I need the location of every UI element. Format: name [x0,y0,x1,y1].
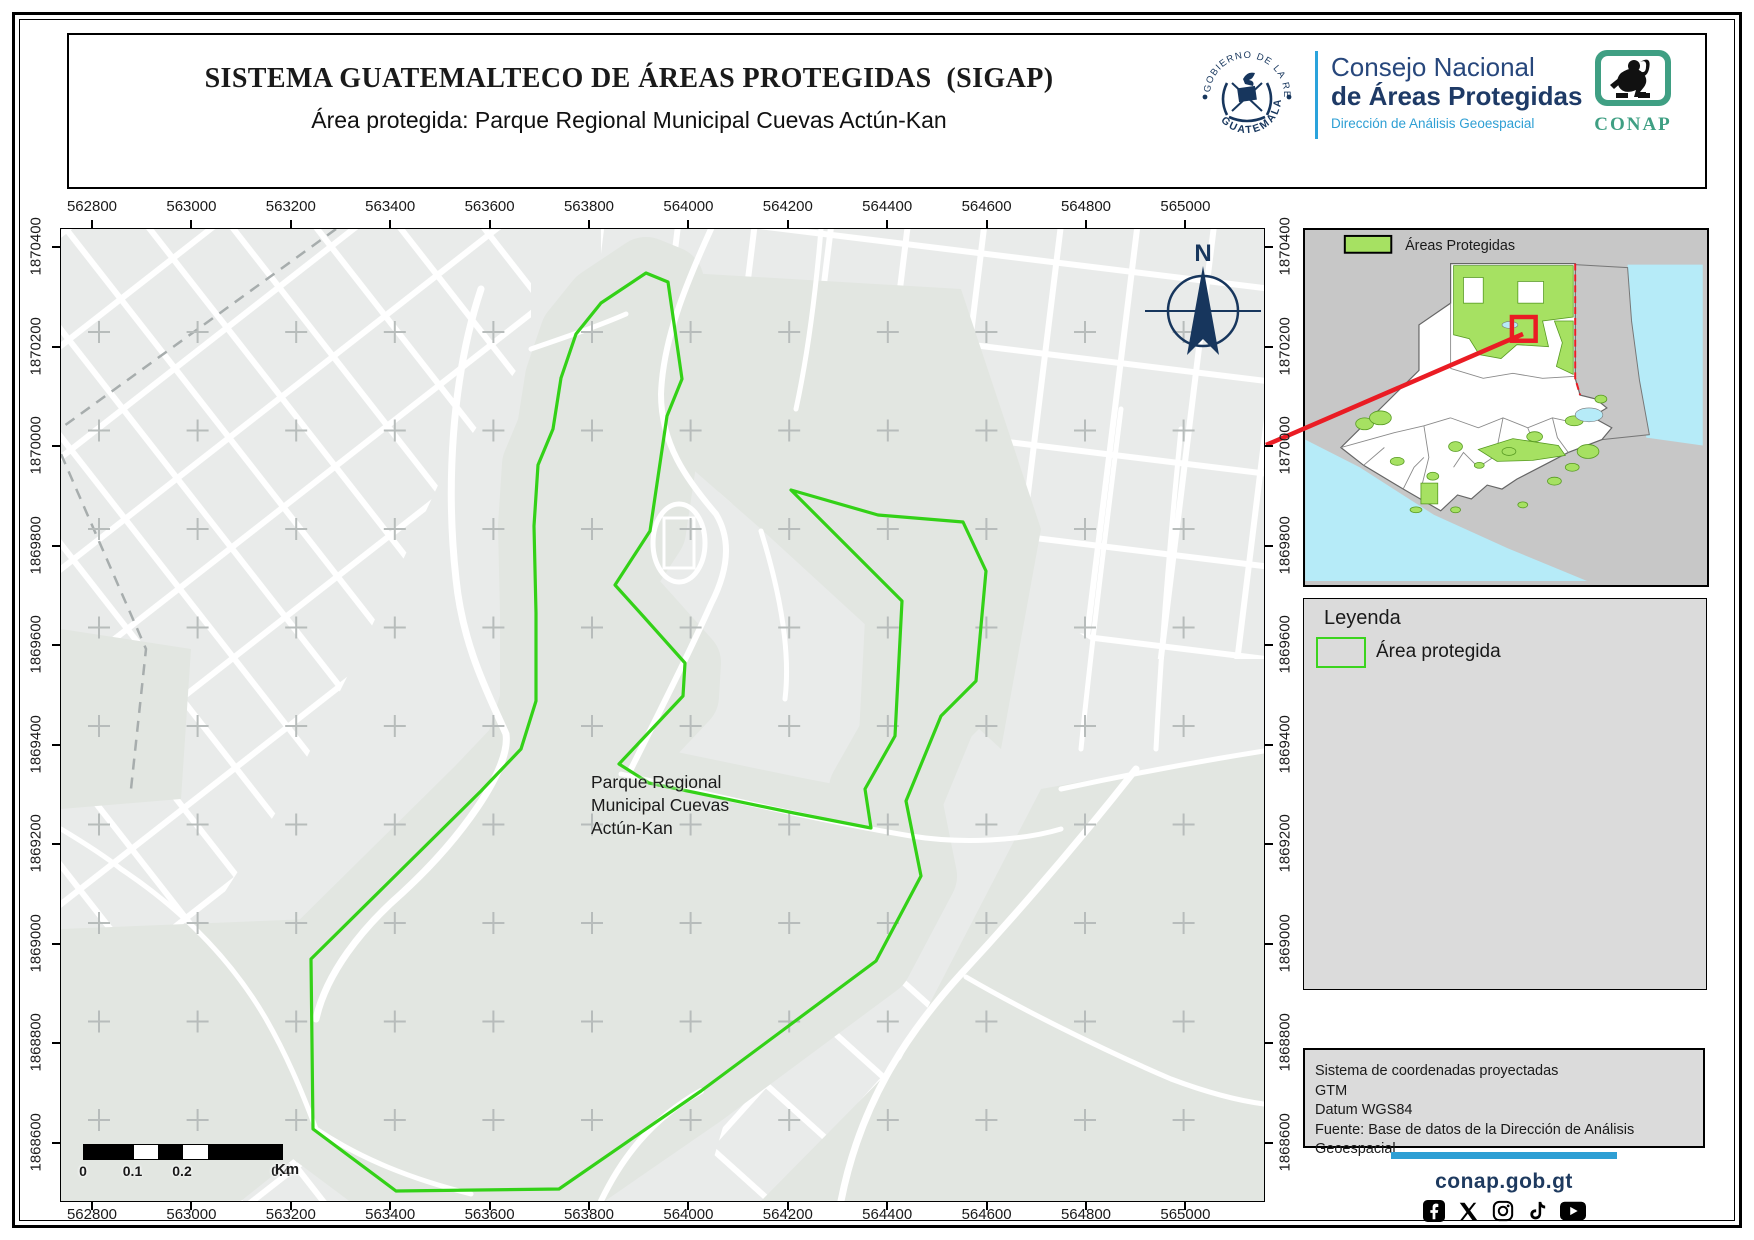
axis-tick-label: 1870000 [1277,417,1294,475]
axis-tick-mark [52,843,60,845]
locator-inset-map: Áreas Protegidas [1303,228,1709,587]
org-line1: Consejo Nacional [1331,53,1582,82]
axis-tick-mark [489,220,491,228]
axis-tick-label: 1870000 [28,417,45,475]
axis-tick-label: 1870400 [1277,218,1294,276]
scale-bar: 0 0.1 0.2 0.4 Km [83,1144,283,1183]
org-line3: Dirección de Análisis Geoespacial [1331,116,1582,131]
axis-tick-label: 564000 [648,198,728,215]
street-basemap: N [61,229,1264,1201]
axis-tick-label: 1869000 [1277,914,1294,972]
social-icons-row [1303,1199,1705,1223]
axis-tick-mark [91,220,93,228]
axis-tick-mark [787,1202,789,1210]
axis-tick-label: 564800 [1046,198,1126,215]
inset-legend-swatch [1345,236,1391,253]
info-line: Datum WGS84 [1315,1101,1703,1121]
axis-tick-mark [52,943,60,945]
axis-tick-mark [1085,1202,1087,1210]
org-name-block: Consejo Nacional de Áreas Protegidas Dir… [1331,53,1582,131]
axis-tick-label: 564600 [947,198,1027,215]
info-line: Sistema de coordenadas proyectadas [1315,1062,1703,1082]
axis-tick-label: 1869200 [28,815,45,873]
axis-tick-label: 1868600 [28,1113,45,1171]
logo-divider [1315,51,1318,139]
info-line: GTM [1315,1082,1703,1102]
coordinate-system-info: Sistema de coordenadas proyectadas GTM D… [1303,1048,1705,1148]
axis-tick-label: 563600 [450,198,530,215]
axis-tick-mark [52,1042,60,1044]
axis-tick-mark [52,246,60,248]
axis-tick-mark [52,1142,60,1144]
axis-tick-label: 565000 [1145,198,1225,215]
axis-tick-label: 563000 [151,198,231,215]
axis-tick-mark [91,1202,93,1210]
page-subtitle: Área protegida: Parque Regional Municipa… [89,107,1169,134]
axis-tick-mark [588,220,590,228]
axis-tick-mark [389,220,391,228]
axis-tick-label: 1869400 [1277,715,1294,773]
axis-tick-mark [687,1202,689,1210]
axis-tick-mark [52,545,60,547]
axis-tick-label: 1868800 [28,1014,45,1072]
conap-monkey-icon [1594,49,1672,107]
axis-tick-label: 563200 [251,198,331,215]
axis-tick-mark [52,445,60,447]
axis-tick-label: 562800 [52,198,132,215]
org-line2: de Áreas Protegidas [1331,82,1582,111]
axis-tick-mark [1265,943,1273,945]
axis-tick-mark [290,220,292,228]
axis-tick-mark [1265,246,1273,248]
axis-tick-mark [1265,1042,1273,1044]
axis-tick-label: 564400 [847,198,927,215]
header: SISTEMA GUATEMALTECO DE ÁREAS PROTEGIDAS… [67,33,1707,189]
axis-tick-mark [52,644,60,646]
axis-tick-mark [290,1202,292,1210]
axis-tick-label: 1868600 [1277,1113,1294,1171]
axis-tick-mark [1085,220,1087,228]
park-name-label: Parque Regional Municipal Cuevas Actún-K… [591,771,729,840]
axis-tick-mark [1265,644,1273,646]
axis-tick-label: 1869600 [28,616,45,674]
conap-logo: CONAP [1591,49,1675,136]
axis-tick-label: 1870400 [28,218,45,276]
axis-tick-mark [1265,545,1273,547]
axis-tick-label: 1869800 [1277,516,1294,574]
axis-tick-mark [687,220,689,228]
svg-text:GUATEMALA: GUATEMALA [1219,97,1285,136]
axis-tick-label: 1869000 [28,914,45,972]
main-map: N Parque Regional Municipal Cuevas Actún… [60,228,1265,1202]
axis-tick-label: 1869800 [28,516,45,574]
x-icon[interactable] [1458,1201,1479,1222]
axis-tick-mark [1265,843,1273,845]
axis-tick-label: 1869600 [1277,616,1294,674]
axis-tick-mark [787,220,789,228]
footer-accent-bar [1391,1152,1617,1159]
map-layout-page: SISTEMA GUATEMALTECO DE ÁREAS PROTEGIDAS… [0,0,1754,1240]
instagram-icon[interactable] [1492,1200,1514,1222]
legend: Leyenda Área protegida [1303,598,1707,990]
title-block: SISTEMA GUATEMALTECO DE ÁREAS PROTEGIDAS… [89,35,1169,187]
legend-title: Leyenda [1324,607,1401,630]
axis-tick-label: 1870200 [28,317,45,375]
axis-tick-mark [52,346,60,348]
protected-area-swatch [1316,637,1366,668]
axis-tick-label: 1868800 [1277,1014,1294,1072]
axis-tick-mark [389,1202,391,1210]
website-link[interactable]: conap.gob.gt [1303,1170,1705,1194]
axis-tick-label: 563400 [350,198,430,215]
scale-bar-segments [83,1144,283,1160]
axis-tick-mark [52,744,60,746]
axis-tick-mark [1265,1142,1273,1144]
youtube-icon[interactable] [1560,1201,1586,1221]
svg-text:N: N [1194,240,1211,267]
inset-legend-label: Áreas Protegidas [1405,237,1515,254]
axis-tick-mark [190,1202,192,1210]
scale-unit: Km [275,1161,299,1178]
axis-tick-mark [1184,1202,1186,1210]
axis-tick-mark [886,1202,888,1210]
axis-tick-mark [588,1202,590,1210]
axis-tick-mark [190,220,192,228]
axis-tick-mark [1265,445,1273,447]
axis-tick-label: 563800 [549,198,629,215]
tiktok-icon[interactable] [1527,1200,1547,1222]
axis-tick-mark [986,1202,988,1210]
axis-tick-label: 564200 [748,198,828,215]
page-title: SISTEMA GUATEMALTECO DE ÁREAS PROTEGIDAS… [89,63,1169,95]
axis-tick-label: 1869200 [1277,815,1294,873]
axis-tick-mark [886,220,888,228]
axis-tick-label: 1870200 [1277,317,1294,375]
government-seal-icon: GOBIERNO DE LA REPÚBLICA GUATEMALA [1197,45,1297,150]
axis-tick-mark [489,1202,491,1210]
axis-tick-label: 1869400 [28,715,45,773]
footer: conap.gob.gt [1303,1152,1705,1223]
conap-wordmark: CONAP [1591,114,1675,136]
axis-tick-mark [986,220,988,228]
legend-item-label: Área protegida [1376,641,1501,663]
axis-tick-mark [1265,346,1273,348]
scale-bar-labels: 0 0.1 0.2 0.4 Km [83,1163,283,1183]
axis-tick-mark [1184,220,1186,228]
axis-tick-mark [1265,744,1273,746]
facebook-icon[interactable] [1423,1200,1445,1222]
